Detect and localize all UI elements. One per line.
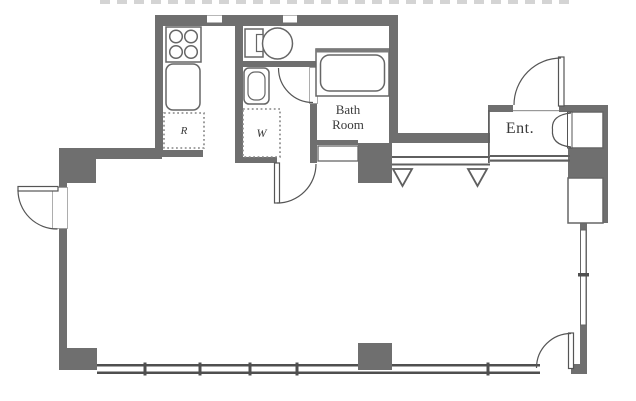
top-wall-vent [283,16,297,23]
window-tick [487,363,490,376]
bifold-front-line [568,112,573,148]
entrance-door-leaf [559,57,565,106]
washroom-fixtures [244,68,269,104]
toilet-bowl [263,28,293,59]
bathtub-top-edge [316,49,389,53]
bifold-door-icon [552,112,572,148]
pier-bottom-middle [358,343,392,370]
step-line [490,155,570,157]
floor-plan-drawing [0,0,636,401]
doors [18,57,574,369]
corridor-triangle-marker [393,169,412,186]
window-tick [199,363,202,376]
bottom-right-door-arc [537,334,572,369]
left-doorway-gap [53,188,68,229]
kitchen-fixtures [166,27,201,110]
wall-bath-bottom [317,140,358,145]
entrance-label: Ent. [496,117,544,141]
corridor-line [392,164,490,166]
bath-room-label-line2: Room [332,117,364,132]
bath-door-arc [279,68,314,103]
window-glass [581,230,587,325]
window-tick [144,363,147,376]
wall-bath-right [389,15,398,143]
corridor-line [392,156,490,158]
wall-room-top [96,148,162,159]
corridor-band [392,156,490,166]
pipe-space-box [568,178,603,223]
bath-room-label: Bath Room [318,99,378,135]
window-tick [578,273,589,277]
window-tick [249,363,252,376]
right-window [578,230,589,325]
pillar-entrance-corner [568,148,608,178]
wall-kitchen-washroom-divider [235,15,243,163]
window-tick [296,363,299,376]
entrance-door-arc [514,58,561,105]
pillar-bath-corner [358,143,392,183]
bottom-window-band [97,363,540,376]
refrigerator-space-label: R [164,113,204,148]
kitchen-sink-icon [166,64,200,110]
top-wall-vent [207,16,222,23]
window-line [97,372,540,375]
door-threshold [513,110,559,111]
left-door-leaf [18,187,58,192]
wall-top [155,15,398,26]
washroom-door-leaf [275,163,280,203]
bottom-right-door-leaf [569,333,574,369]
pillar-room-top-left [59,148,96,183]
window-line [97,364,540,367]
wall-washroom-bottom [235,157,277,163]
corridor-triangle-marker [468,169,487,186]
washroom-door-arc [277,164,316,203]
wall-kitchen-bottom [158,150,203,157]
burner-icon [185,46,198,59]
floor-plan: R W Bath Room Ent. [0,0,636,401]
step-line [490,160,570,162]
left-door-arc [18,190,58,229]
wall-toilet-bottom [243,61,317,67]
wall-entrance-top-left [488,105,513,112]
pier-bottom-left [59,348,97,370]
wall-corridor-top [392,133,490,143]
washbasin-bowl [248,72,265,100]
wall-entrance-top-right [559,105,608,112]
burner-icon [185,30,198,43]
toilet-icon [245,28,293,59]
wall-left [59,228,67,348]
bathtub-inner [321,55,385,91]
bath-room-label-line1: Bath [336,102,361,117]
bath-step-box [318,146,358,161]
entrance-left-line [488,110,490,163]
wall-kitchen-left [155,15,163,157]
washer-space-label: W [243,109,280,157]
burner-icon [170,30,183,43]
shoe-closet-box [571,112,603,148]
burner-icon [170,46,183,59]
bathtub-icon [316,49,389,96]
